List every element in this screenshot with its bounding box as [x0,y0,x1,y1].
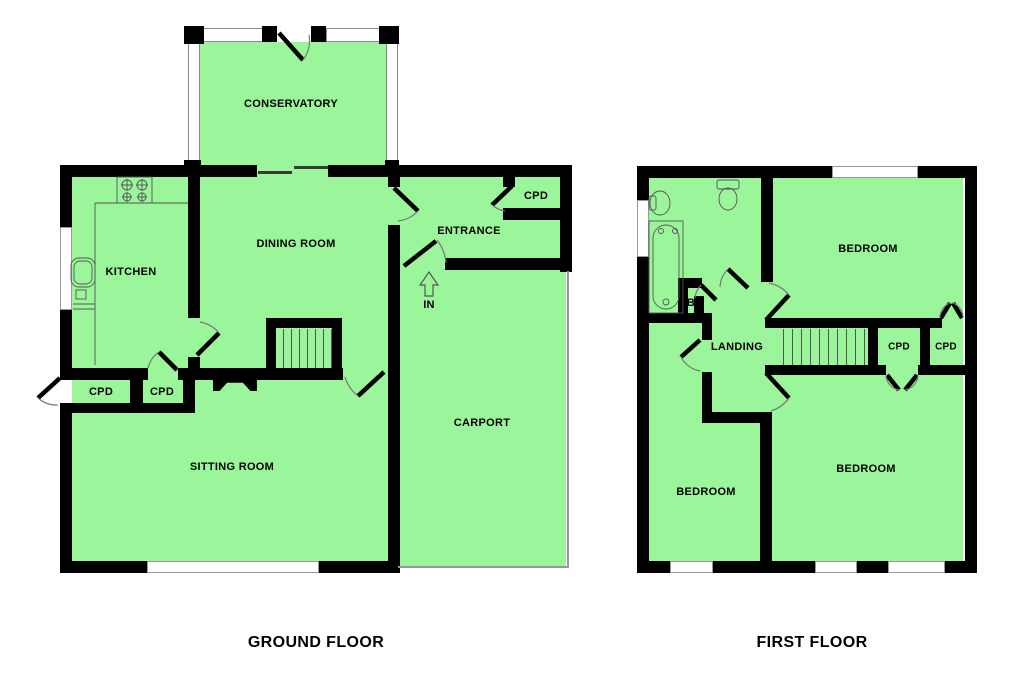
wall [694,296,704,313]
floorplan-canvas: CONSERVATORY DINING ROOM KITCHEN ENTRANC… [0,0,1024,683]
wall [918,365,965,375]
wall [678,278,702,288]
room-label-b-cupboard: B [687,297,695,309]
first-floor-plan: BEDROOM LANDING B CPD CPD BEDROOM BEDROO… [0,0,1024,683]
wall [649,313,703,323]
wall [637,257,649,573]
stairs-wall [765,318,878,328]
bedroom-right-window [888,561,945,573]
wall [761,178,773,282]
room-label-cpd-left: CPD [888,342,910,353]
room-label-bedroom-top: BEDROOM [838,243,898,255]
wall [965,166,977,573]
bedroom-top-window [832,166,918,178]
stairs-wall [868,328,878,365]
wall [702,313,712,340]
room-label-landing: LANDING [711,341,763,353]
wall [930,318,942,328]
stairs-treads [775,329,868,365]
bedroom-right-window [815,561,857,573]
room-label-bedroom-bottom-right: BEDROOM [836,463,896,475]
stairs-wall [765,365,878,375]
room-label-bedroom-bottom-left: BEDROOM [676,486,736,498]
wall [868,365,886,375]
wall [637,166,649,200]
first-floor-title: FIRST FLOOR [756,634,867,652]
bathroom-window [637,200,649,257]
room-label-cpd-right: CPD [935,342,957,353]
wall [637,166,977,178]
wall [702,372,712,412]
wall [760,412,772,561]
bedroom-left-window [670,561,713,573]
wall [878,318,920,328]
